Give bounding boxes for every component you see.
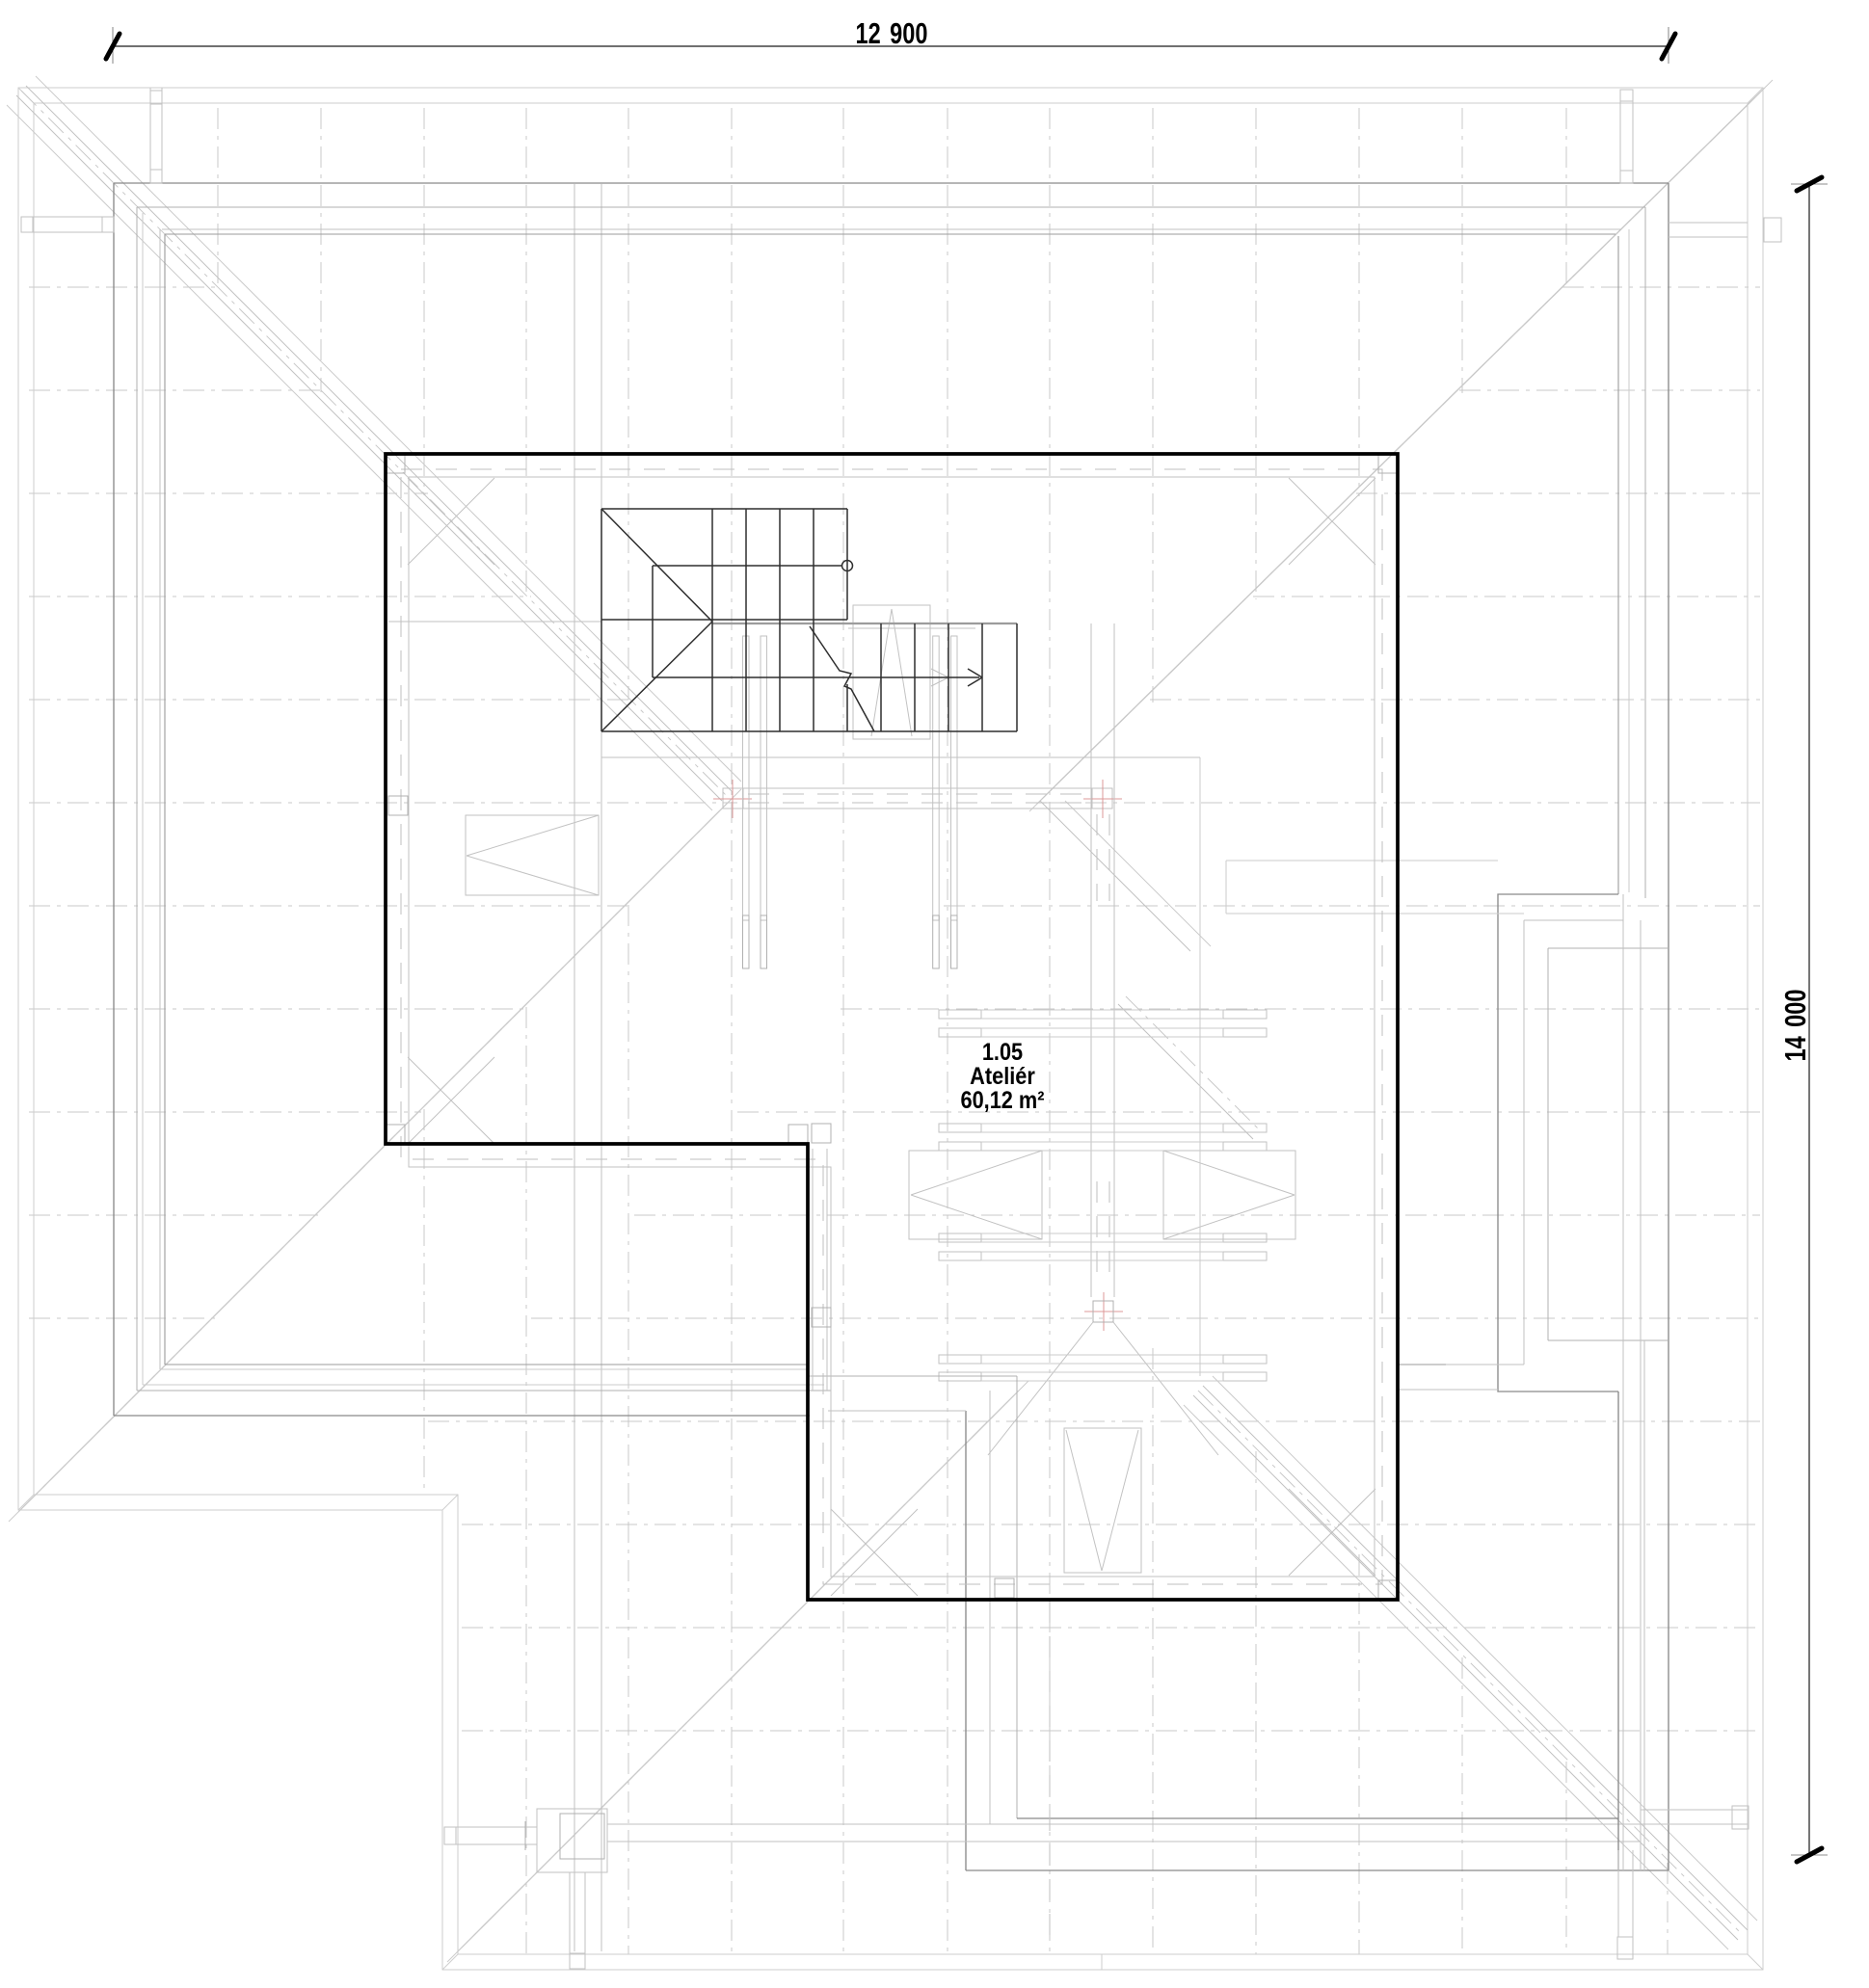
svg-text:1.05: 1.05 bbox=[982, 1039, 1023, 1066]
svg-text:12 900: 12 900 bbox=[856, 16, 928, 50]
svg-text:14 000: 14 000 bbox=[1778, 990, 1812, 1062]
svg-text:Ateliér: Ateliér bbox=[970, 1063, 1035, 1090]
svg-text:60,12 m²: 60,12 m² bbox=[960, 1087, 1044, 1114]
